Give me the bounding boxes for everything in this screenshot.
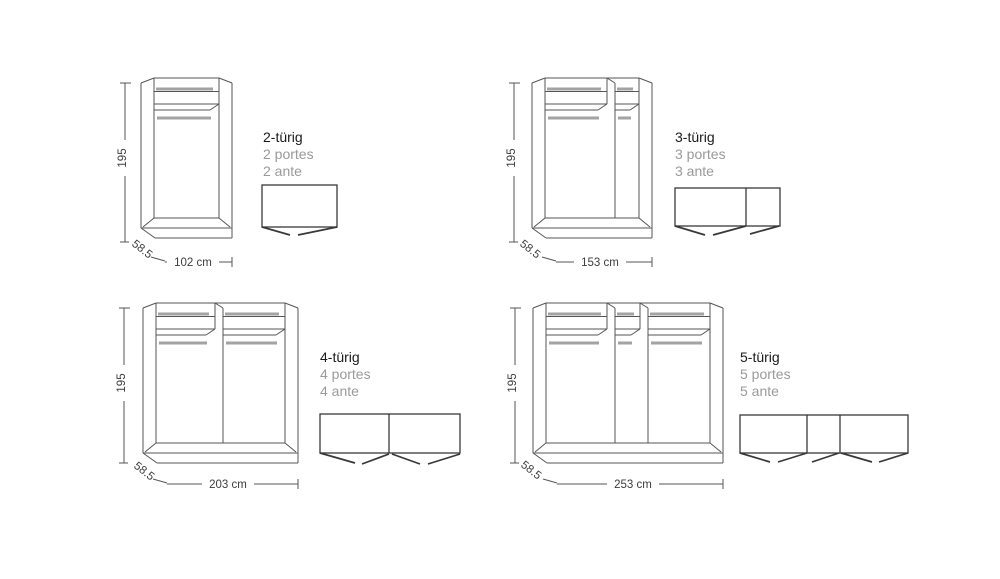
depth-dimension-label: 58.5 (517, 238, 542, 261)
front-view-3-tuerig (532, 78, 652, 238)
variant-card-3-label-block: 3-türig 3 portes 3 ante (675, 129, 726, 180)
diagram-scene: 19558.5102 cm19558.5153 cm19558.5203 cm1… (0, 0, 1000, 579)
height-dimension-label: 195 (506, 148, 518, 167)
dimensions-2-tuerig: 19558.5102 cm (117, 83, 232, 269)
variant-card-2-label-block: 2-türig 2 portes 2 ante (263, 129, 314, 180)
width-dimension-label: 203 cm (209, 479, 247, 491)
top-view-5-tuerig (740, 415, 908, 462)
dimensions-3-tuerig: 19558.5153 cm (506, 83, 652, 269)
variant-card-4-label-block: 4-türig 4 portes 4 ante (320, 349, 371, 400)
variant-title-it: 5 ante (740, 383, 791, 400)
width-dimension-label: 102 cm (174, 257, 212, 269)
height-dimension-label: 195 (117, 148, 129, 167)
variant-card-5-label-block: 5-türig 5 portes 5 ante (740, 349, 791, 400)
variant-title-de: 3-türig (675, 129, 726, 146)
variant-title-it: 4 ante (320, 383, 371, 400)
depth-dimension-label: 58.5 (129, 238, 154, 261)
variant-title-fr: 3 portes (675, 146, 726, 163)
front-view-5-tuerig (533, 303, 723, 463)
top-view-2-tuerig (262, 185, 337, 235)
variant-title-de: 5-türig (740, 349, 791, 366)
depth-dimension-label: 58.5 (518, 459, 543, 482)
wardrobe-dimension-diagram: 19558.5102 cm19558.5153 cm19558.5203 cm1… (0, 0, 1000, 579)
front-view-4-tuerig (143, 303, 298, 463)
front-view-2-tuerig (141, 78, 232, 238)
top-view-3-tuerig (675, 188, 780, 235)
variant-title-fr: 2 portes (263, 146, 314, 163)
variant-title-fr: 4 portes (320, 366, 371, 383)
variant-title-de: 4-türig (320, 349, 371, 366)
variant-title-de: 2-türig (263, 129, 314, 146)
depth-dimension-label: 58.5 (131, 460, 156, 483)
variant-title-it: 2 ante (263, 163, 314, 180)
width-dimension-label: 153 cm (581, 257, 619, 269)
variant-title-fr: 5 portes (740, 366, 791, 383)
width-dimension-label: 253 cm (614, 479, 652, 491)
height-dimension-label: 195 (507, 373, 519, 392)
variant-title-it: 3 ante (675, 163, 726, 180)
height-dimension-label: 195 (116, 373, 128, 392)
top-view-4-tuerig (320, 414, 460, 464)
